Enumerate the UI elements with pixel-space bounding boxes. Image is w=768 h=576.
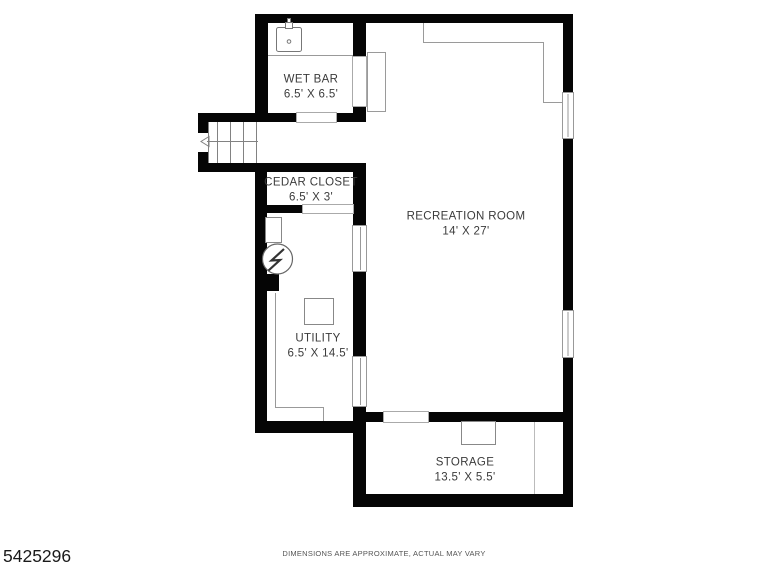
room-name: RECREATION ROOM [407,210,526,225]
fixtures-overlay [0,0,768,576]
storage-door-opening [384,412,429,423]
room-dims: 6.5' X 14.5' [287,346,348,361]
storage-equipment-icon [462,422,496,445]
room-name: CEDAR CLOSET [264,176,358,191]
floor-plan: WET BAR 6.5' X 6.5' CEDAR CLOSET 6.5' X … [0,0,768,576]
disclaimer-text: DIMENSIONS ARE APPROXIMATE, ACTUAL MAY V… [0,549,768,558]
room-dims: 6.5' X 6.5' [284,87,339,102]
room-label-cedar-closet: CEDAR CLOSET 6.5' X 3' [264,176,358,205]
recreation-window-upper [563,93,574,139]
room-label-recreation-room: RECREATION ROOM 14' X 27' [407,210,526,239]
stairs [209,122,257,163]
room-dims: 14' X 27' [407,224,526,239]
wet-bar-south-opening [297,113,337,123]
listing-id: 5425296 [3,546,71,567]
room-dims: 13.5' X 5.5' [434,470,495,485]
room-label-storage: STORAGE 13.5' X 5.5' [434,456,495,485]
water-heater-icon [263,244,293,274]
soffit-line [424,23,564,103]
furnace-icon [305,299,334,325]
room-name: WET BAR [284,73,339,88]
room-name: STORAGE [434,456,495,471]
room-label-wet-bar: WET BAR 6.5' X 6.5' [284,73,339,102]
equipment-icon [266,218,282,243]
wet-bar-door-opening [353,57,367,107]
wet-bar-door-leaf [368,53,386,112]
room-dims: 6.5' X 3' [264,190,358,205]
room-name: UTILITY [287,332,348,347]
room-label-utility: UTILITY 6.5' X 14.5' [287,332,348,361]
recreation-window-lower [563,311,574,358]
utility-window-upper [353,226,367,272]
cedar-closet-door-opening [303,205,354,214]
utility-window-lower [353,357,367,407]
stair-direction-arrow [201,137,258,147]
sink-icon [277,19,302,52]
